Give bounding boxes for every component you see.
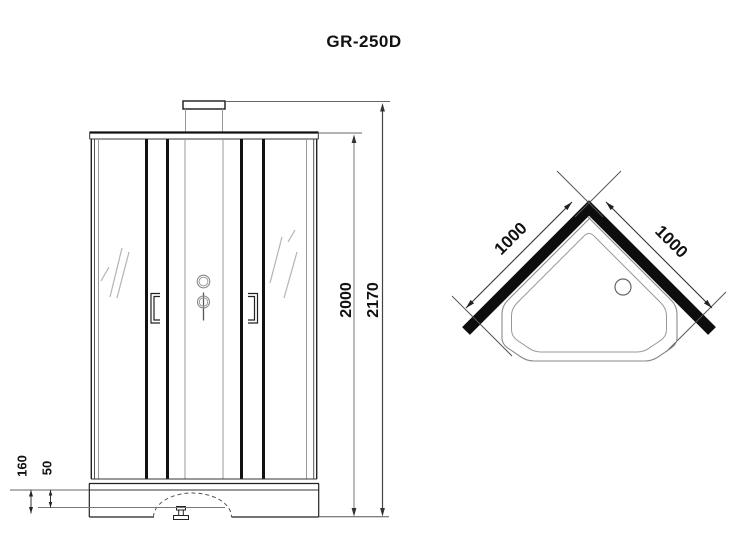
- tray-outline-inner: [512, 234, 667, 353]
- model-title: GR-250D: [326, 32, 401, 52]
- chimney-cap: [183, 101, 225, 132]
- shower-cabin-technical-drawing: GR-250D 2000 2170 160 50 1000 1000: [0, 0, 738, 554]
- tray-outline-outer: [502, 217, 677, 361]
- glass-shine-left: [101, 248, 129, 298]
- drain: [615, 279, 631, 295]
- dim-label-tray-step: 50: [40, 461, 55, 475]
- dimension-1000-left: [466, 202, 572, 308]
- glass-shine-right: [270, 230, 297, 298]
- dimension-160: [29, 490, 33, 514]
- door-handle-right: [248, 294, 258, 324]
- dimension-50: [49, 490, 53, 508]
- door-handle-left: [151, 294, 160, 324]
- shower-tray: [89, 484, 319, 518]
- top-view: [452, 171, 726, 361]
- front-view: [89, 101, 319, 520]
- dim-label-tray-height: 160: [15, 455, 30, 477]
- dimension-2000: [352, 135, 357, 517]
- top-rail: [90, 132, 319, 139]
- adjustable-foot: [174, 507, 189, 520]
- corner-walls: [466, 208, 712, 331]
- shower-control-knobs: [197, 275, 210, 320]
- drawing-lines: [0, 0, 738, 554]
- dimension-lines-front: [10, 102, 390, 517]
- apron-arch: [154, 493, 232, 517]
- dim-label-total-height: 2170: [365, 282, 383, 318]
- dim-label-inner-height: 2000: [338, 282, 356, 318]
- top-view-extension-lines: [452, 171, 726, 356]
